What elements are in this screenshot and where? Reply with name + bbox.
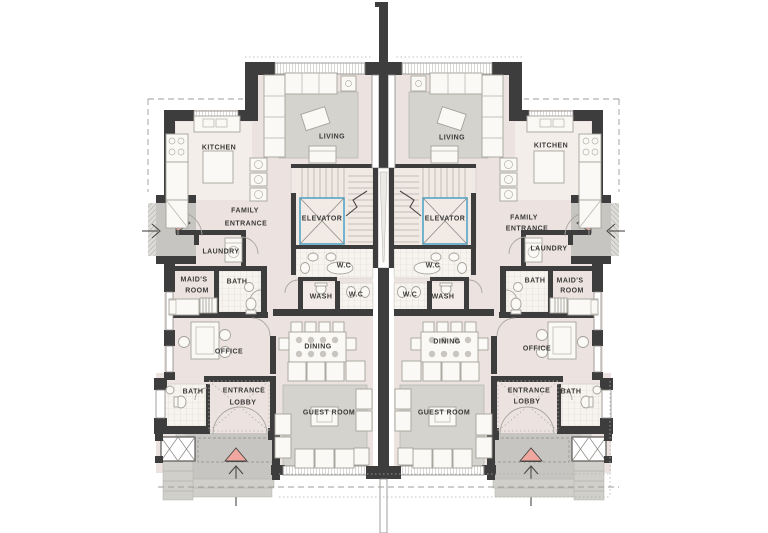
bed	[169, 299, 199, 315]
room-label-entrance-lobby-right: LOBBY	[514, 399, 541, 406]
room-label-kitchen-left: KITCHEN	[202, 145, 236, 152]
floor-plan-page: KITCHEN LIVING FAMILY ENTRANCE ELEVATOR …	[0, 0, 768, 533]
floor-plan-drawing	[0, 0, 768, 533]
window	[275, 63, 365, 74]
room-label-dining-right: DINING	[433, 339, 460, 346]
room-label-living-left: LIVING	[319, 134, 345, 141]
room-label-wc-main-left: W.C	[337, 263, 352, 270]
room-label-laundry-right: LAUNDRY	[530, 246, 567, 253]
room-label-guest-room-left: GUEST ROOM	[303, 410, 355, 417]
room-label-wc-small-left: W.C	[349, 292, 364, 299]
room-label-bath-lower-right: BATH	[561, 389, 582, 396]
room-label-maids-room-right: ROOM	[560, 288, 584, 295]
window	[166, 346, 173, 372]
room-label-kitchen-right: KITCHEN	[534, 143, 568, 150]
room-label-wc-small-right: W.C	[403, 292, 418, 299]
room-label-family-entrance-left: ENTRANCE	[225, 221, 268, 228]
room-label-maids-room-right: MAID'S	[557, 278, 584, 285]
room-label-entrance-lobby-right: ENTRANCE	[508, 388, 551, 395]
room-label-entrance-lobby-left: LOBBY	[230, 400, 257, 407]
room-label-family-entrance-right: ENTRANCE	[506, 226, 549, 233]
room-label-maids-room-left: ROOM	[185, 288, 209, 295]
room-label-bath-upper-left: BATH	[227, 279, 248, 286]
planter	[161, 437, 195, 461]
wardrobe	[200, 298, 217, 313]
room-label-laundry-left: LAUNDRY	[202, 249, 239, 256]
unit-structure	[142, 57, 373, 506]
room-label-guest-room-right: GUEST ROOM	[418, 410, 470, 417]
room-label-dining-left: DINING	[304, 344, 331, 351]
room-label-elevator-right: ELEVATOR	[425, 216, 466, 223]
room-label-office-left: OFFICE	[215, 349, 243, 356]
kitchen-island	[203, 151, 233, 183]
room-label-wc-main-right: W.C	[426, 263, 441, 270]
room-label-maids-room-left: MAID'S	[181, 277, 208, 284]
room-label-bath-lower-left: BATH	[183, 389, 204, 396]
room-label-living-right: LIVING	[439, 135, 465, 142]
room-label-family-entrance-left: FAMILY	[231, 208, 259, 215]
room-label-office-right: OFFICE	[523, 346, 551, 353]
window	[156, 390, 165, 418]
unit-structure-mirrored	[394, 57, 625, 506]
room-label-family-entrance-right: FAMILY	[510, 215, 538, 222]
room-label-wash-right: WASH	[432, 294, 455, 301]
room-label-bath-upper-right: BATH	[525, 278, 546, 285]
room-label-entrance-lobby-left: ENTRANCE	[223, 388, 266, 395]
room-label-wash-left: WASH	[310, 294, 333, 301]
room-label-elevator-left: ELEVATOR	[302, 216, 343, 223]
